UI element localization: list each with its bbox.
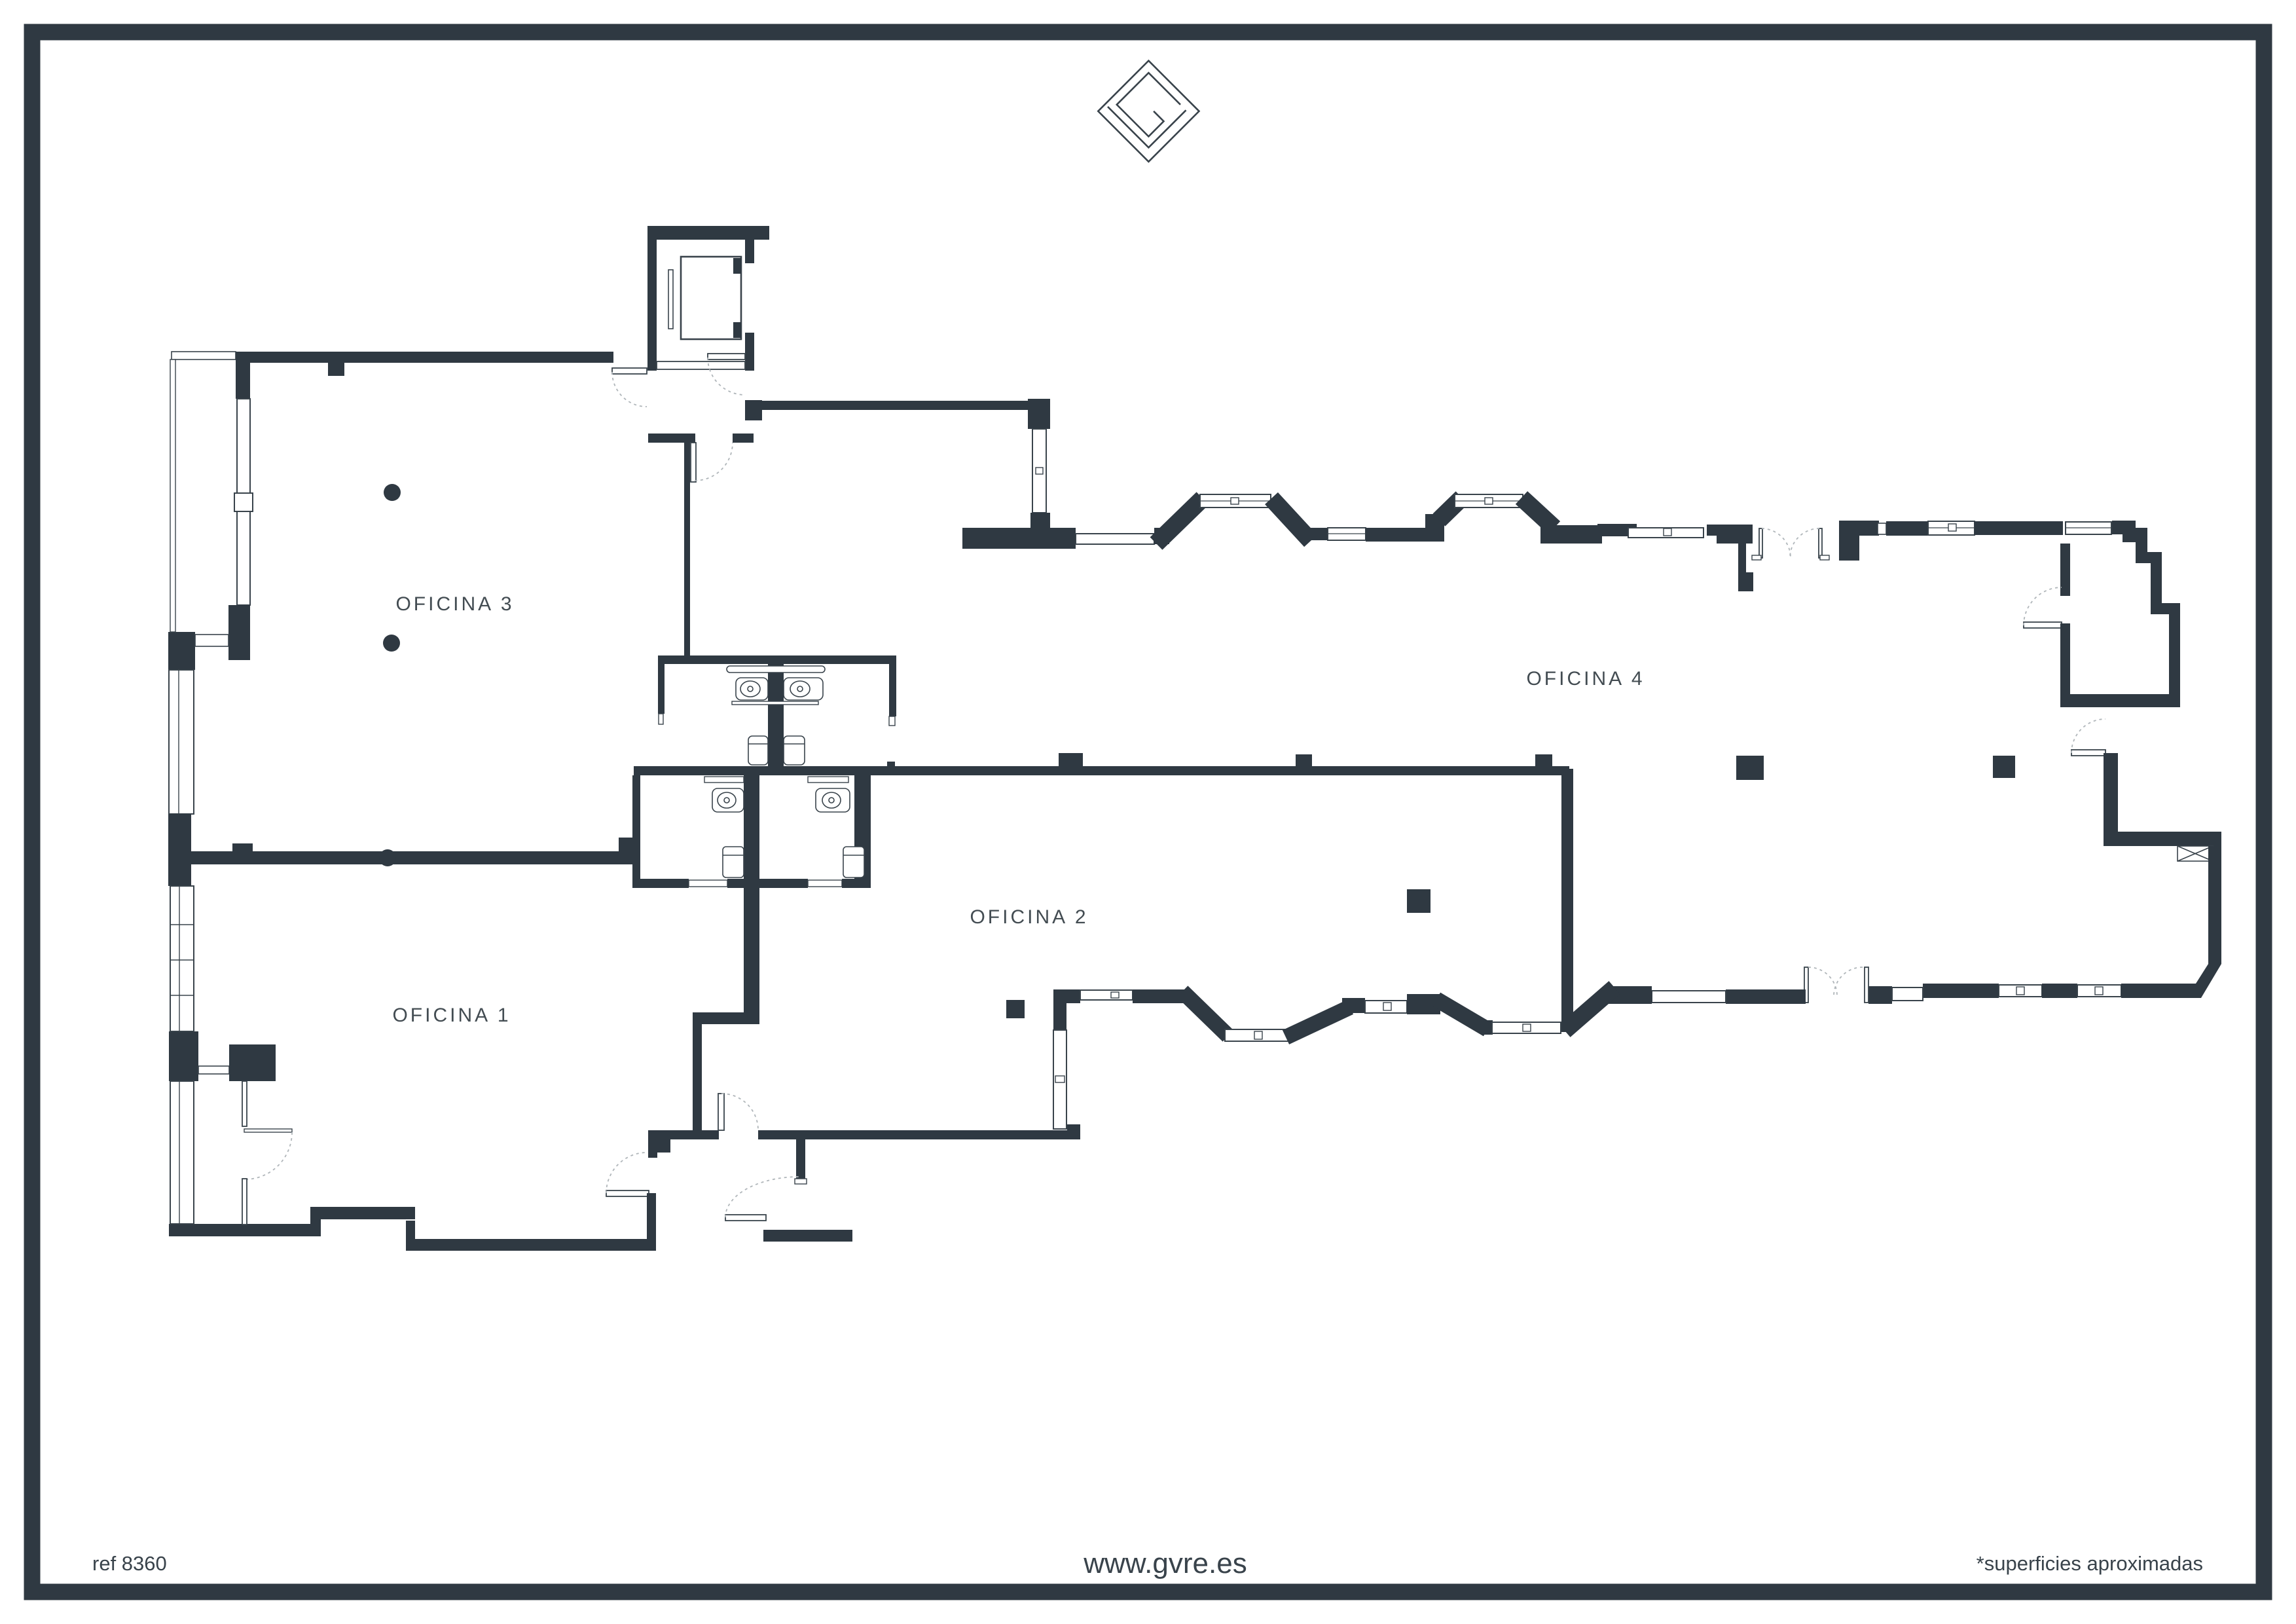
- svg-text:OFICINA 3: OFICINA 3: [395, 593, 514, 615]
- svg-text:www.gvre.es: www.gvre.es: [1083, 1547, 1247, 1579]
- svg-text:OFICINA 4: OFICINA 4: [1526, 668, 1645, 690]
- svg-text:OFICINA 2: OFICINA 2: [970, 906, 1088, 928]
- svg-text:OFICINA 1: OFICINA 1: [392, 1005, 511, 1026]
- svg-text:ref 8360: ref 8360: [92, 1552, 167, 1575]
- svg-text:*superficies aproximadas: *superficies aproximadas: [1977, 1552, 2203, 1575]
